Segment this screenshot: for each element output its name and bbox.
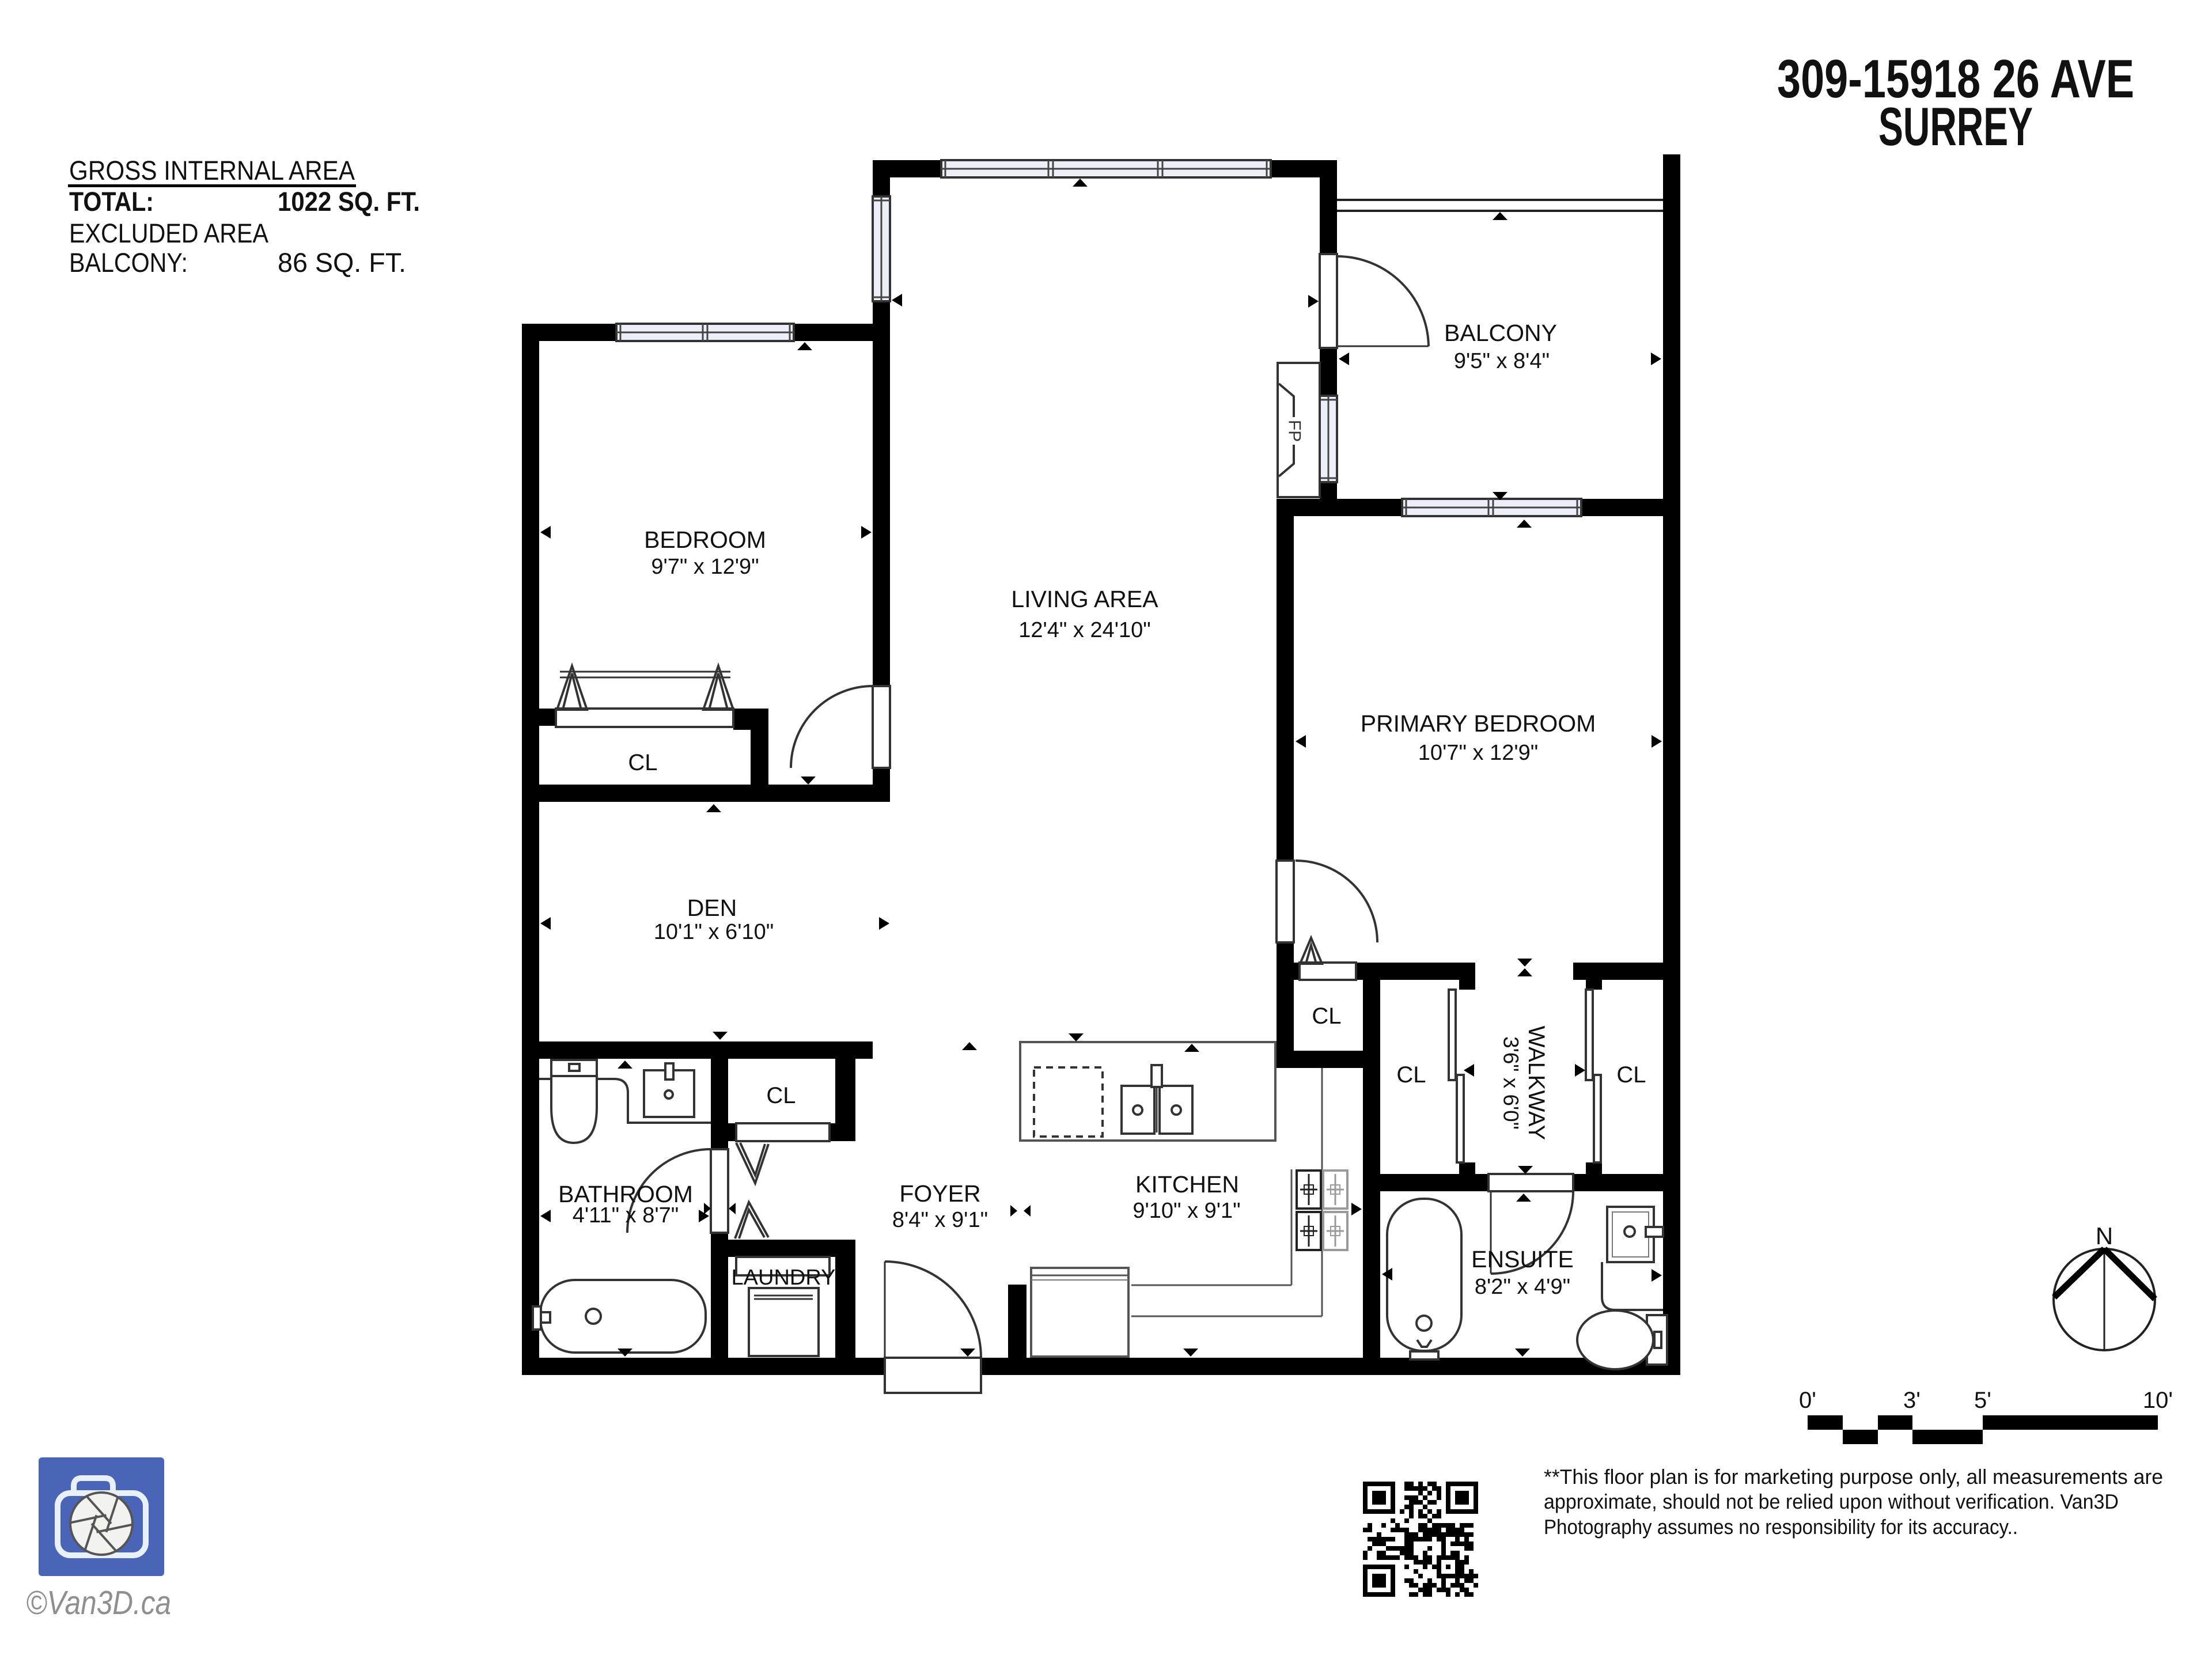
svg-text:LIVING AREA: LIVING AREA: [1011, 586, 1158, 612]
svg-text:86 SQ. FT.: 86 SQ. FT.: [278, 247, 406, 278]
svg-text:CL: CL: [628, 750, 657, 775]
svg-text:8'2" x 4'9": 8'2" x 4'9": [1475, 1275, 1570, 1299]
svg-text:LAUNDRY: LAUNDRY: [732, 1266, 836, 1290]
svg-text:9'5" x 8'4": 9'5" x 8'4": [1454, 349, 1550, 373]
svg-text:10'1" x 6'10": 10'1" x 6'10": [654, 920, 774, 944]
svg-text:GROSS INTERNAL AREA: GROSS INTERNAL AREA: [69, 155, 355, 185]
svg-text:PRIMARY BEDROOM: PRIMARY BEDROOM: [1361, 710, 1596, 737]
svg-text:5': 5': [1974, 1388, 1991, 1413]
svg-text:TOTAL:: TOTAL:: [69, 186, 154, 217]
svg-text:CL: CL: [1396, 1062, 1426, 1088]
svg-text:CL: CL: [1616, 1062, 1646, 1088]
svg-text:9'7" x 12'9": 9'7" x 12'9": [651, 555, 759, 579]
svg-text:BEDROOM: BEDROOM: [644, 527, 766, 553]
svg-text:CL: CL: [766, 1083, 796, 1108]
svg-text:©Van3D.ca: ©Van3D.ca: [26, 1584, 171, 1622]
svg-text:8'4" x 9'1": 8'4" x 9'1": [892, 1208, 988, 1232]
svg-text:10': 10': [2143, 1388, 2173, 1413]
svg-text:0': 0': [1799, 1388, 1816, 1413]
svg-text:BALCONY:: BALCONY:: [69, 247, 188, 278]
svg-text:SURREY: SURREY: [1878, 96, 2033, 157]
svg-text:BALCONY: BALCONY: [1444, 320, 1557, 346]
svg-text:ENSUITE: ENSUITE: [1471, 1246, 1574, 1272]
svg-text:9'10" x 9'1": 9'10" x 9'1": [1132, 1199, 1240, 1223]
svg-text:**This floor plan is for marke: **This floor plan is for marketing purpo…: [1544, 1465, 2163, 1488]
svg-text:Photography assumes no respons: Photography assumes no responsibility fo…: [1544, 1515, 2018, 1539]
svg-text:WALKWAY: WALKWAY: [1524, 1026, 1549, 1141]
svg-text:approximate, should not be rel: approximate, should not be relied upon w…: [1544, 1490, 2119, 1513]
svg-text:CL: CL: [1312, 1003, 1341, 1029]
svg-text:FOYER: FOYER: [899, 1180, 980, 1207]
svg-text:KITCHEN: KITCHEN: [1135, 1171, 1239, 1198]
svg-text:12'4" x 24'10": 12'4" x 24'10": [1018, 618, 1151, 642]
svg-text:3': 3': [1903, 1388, 1921, 1413]
svg-text:10'7" x 12'9": 10'7" x 12'9": [1418, 741, 1538, 765]
svg-text:DEN: DEN: [687, 895, 737, 921]
svg-text:N: N: [2096, 1222, 2113, 1249]
svg-text:FP: FP: [1285, 420, 1304, 442]
svg-text:3'6" x 6'0": 3'6" x 6'0": [1499, 1036, 1523, 1130]
svg-text:1022 SQ. FT.: 1022 SQ. FT.: [278, 186, 420, 217]
svg-text:4'11" x 8'7": 4'11" x 8'7": [573, 1203, 679, 1228]
svg-text:EXCLUDED AREA: EXCLUDED AREA: [69, 218, 269, 248]
